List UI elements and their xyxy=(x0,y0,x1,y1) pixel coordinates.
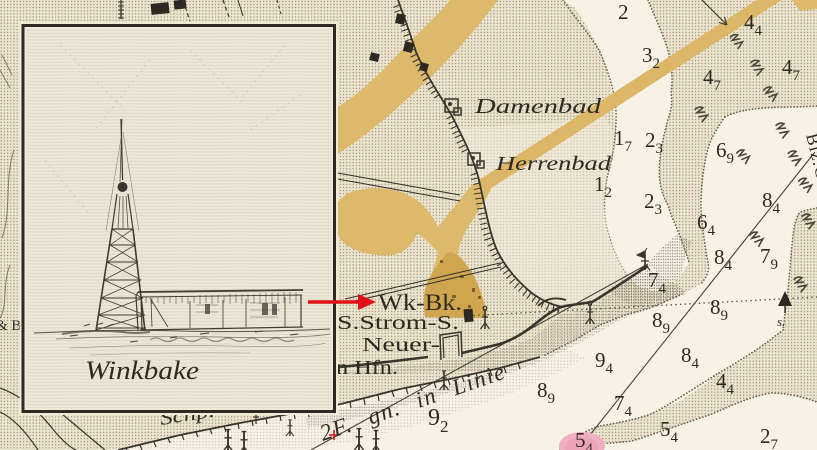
svg-text:S.Strom-S.: S.Strom-S. xyxy=(337,312,459,334)
svg-text:Winkbake: Winkbake xyxy=(85,356,199,385)
svg-text:Neuer-: Neuer- xyxy=(362,334,440,356)
svg-text:Damenbad: Damenbad xyxy=(474,94,602,118)
svg-text:s.: s. xyxy=(777,314,785,329)
svg-text:n Hfn.: n Hfn. xyxy=(336,357,398,379)
svg-text:2: 2 xyxy=(618,0,629,24)
svg-text:& B: & B xyxy=(0,318,21,334)
